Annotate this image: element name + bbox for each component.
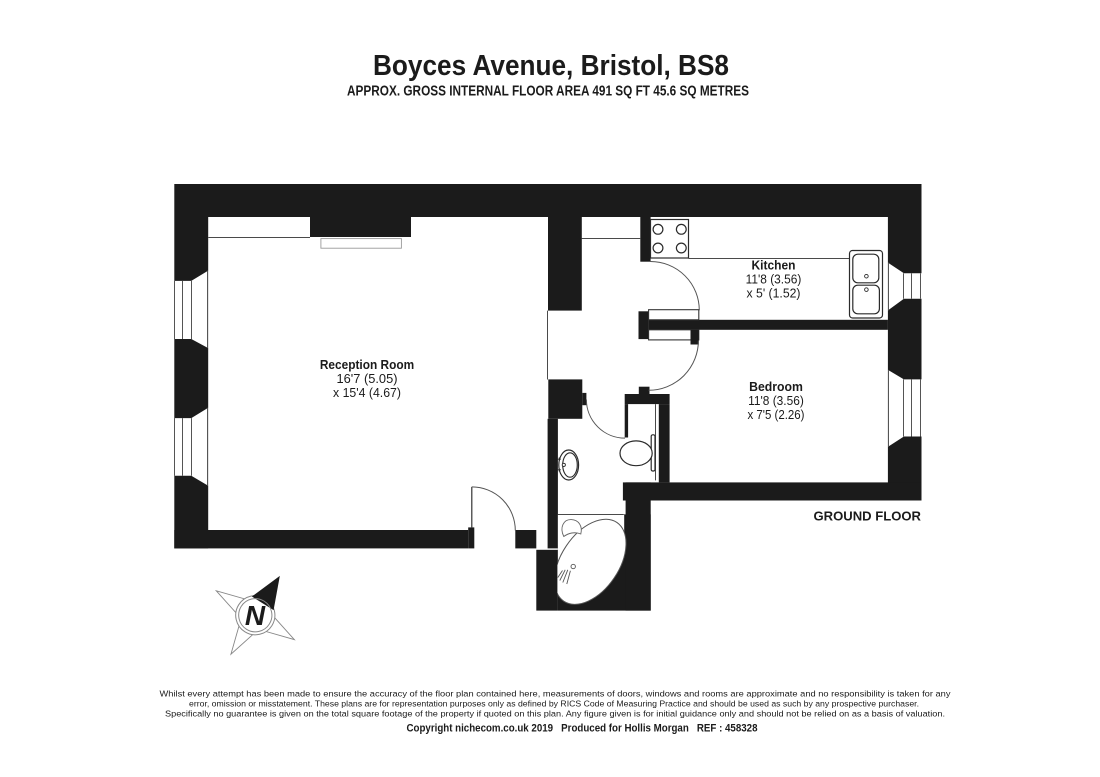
svg-text:x 7'5 (2.26): x 7'5 (2.26)	[748, 408, 805, 422]
svg-text:error, omission or misstatemen: error, omission or misstatement. These p…	[189, 699, 919, 709]
svg-text:Bedroom: Bedroom	[749, 380, 803, 394]
svg-text:16'7 (5.05): 16'7 (5.05)	[337, 372, 398, 386]
svg-text:Specifically no guarantee is g: Specifically no guarantee is given on th…	[165, 709, 945, 719]
svg-text:Reception Room: Reception Room	[320, 358, 414, 372]
svg-text:Copyright nichecom.co.uk 2019: Copyright nichecom.co.uk 2019 Produced f…	[407, 723, 758, 735]
svg-text:11'8 (3.56): 11'8 (3.56)	[746, 273, 802, 287]
svg-text:x 15'4 (4.67): x 15'4 (4.67)	[333, 386, 401, 400]
svg-text:N: N	[245, 600, 266, 631]
svg-text:Boyces Avenue, Bristol, BS8: Boyces Avenue, Bristol, BS8	[373, 50, 729, 82]
svg-text:Kitchen: Kitchen	[752, 259, 796, 273]
svg-text:11'8 (3.56): 11'8 (3.56)	[748, 394, 804, 408]
svg-text:Whilst every attempt has been: Whilst every attempt has been made to en…	[160, 689, 952, 699]
svg-text:x 5' (1.52): x 5' (1.52)	[747, 287, 801, 301]
svg-text:APPROX. GROSS INTERNAL FLOOR A: APPROX. GROSS INTERNAL FLOOR AREA 491 SQ…	[347, 84, 749, 100]
svg-text:GROUND FLOOR: GROUND FLOOR	[814, 509, 922, 524]
